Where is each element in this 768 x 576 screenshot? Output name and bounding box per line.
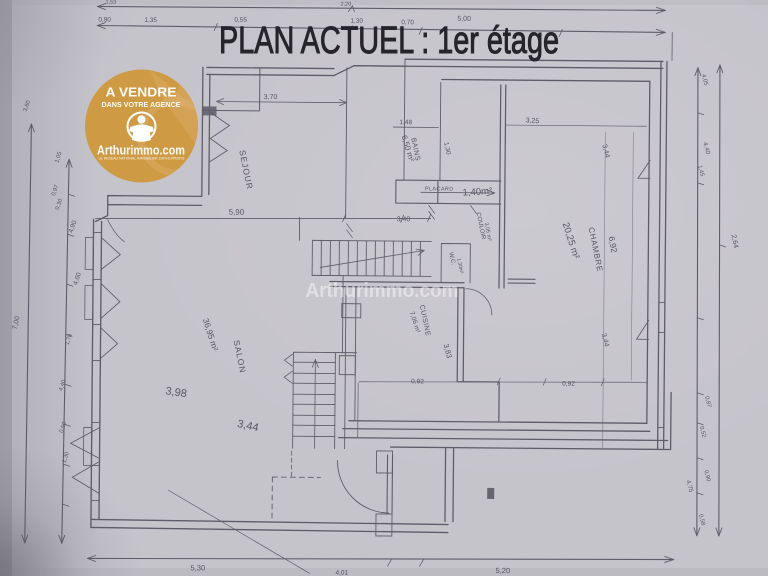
svg-text:Arthurimmo.com: Arthurimmo.com <box>97 143 185 158</box>
svg-text:PLAN ACTUEL : 1er étage: PLAN ACTUEL : 1er étage <box>219 20 559 62</box>
svg-text:3,25: 3,25 <box>525 117 539 125</box>
svg-text:LE RESEAU NATIONAL IMMOBILIER: LE RESEAU NATIONAL IMMOBILIER 100% EXPER… <box>99 156 186 160</box>
svg-text:4,01: 4,01 <box>335 570 348 576</box>
svg-text:3,70: 3,70 <box>264 94 278 101</box>
svg-text:0,92: 0,92 <box>562 381 575 388</box>
svg-text:PLACARD: PLACARD <box>425 186 454 192</box>
svg-text:1,35: 1,35 <box>144 17 157 24</box>
svg-text:2,20: 2,20 <box>340 2 351 8</box>
svg-text:5,20: 5,20 <box>495 566 510 575</box>
svg-text:5,30: 5,30 <box>191 563 206 572</box>
svg-text:Arthurimmo.com: Arthurimmo.com <box>306 279 459 302</box>
svg-text:1,48: 1,48 <box>399 119 412 126</box>
svg-text:0,92: 0,92 <box>411 378 424 385</box>
svg-text:1,53: 1,53 <box>105 0 116 6</box>
svg-text:5,90: 5,90 <box>229 208 245 217</box>
svg-text:1,40m²: 1,40m² <box>462 186 492 199</box>
svg-text:3,40: 3,40 <box>397 216 411 223</box>
svg-text:A VENDRE: A VENDRE <box>106 85 177 100</box>
svg-text:DANS VOTRE AGENCE: DANS VOTRE AGENCE <box>102 100 181 109</box>
svg-text:0,90: 0,90 <box>98 16 111 23</box>
